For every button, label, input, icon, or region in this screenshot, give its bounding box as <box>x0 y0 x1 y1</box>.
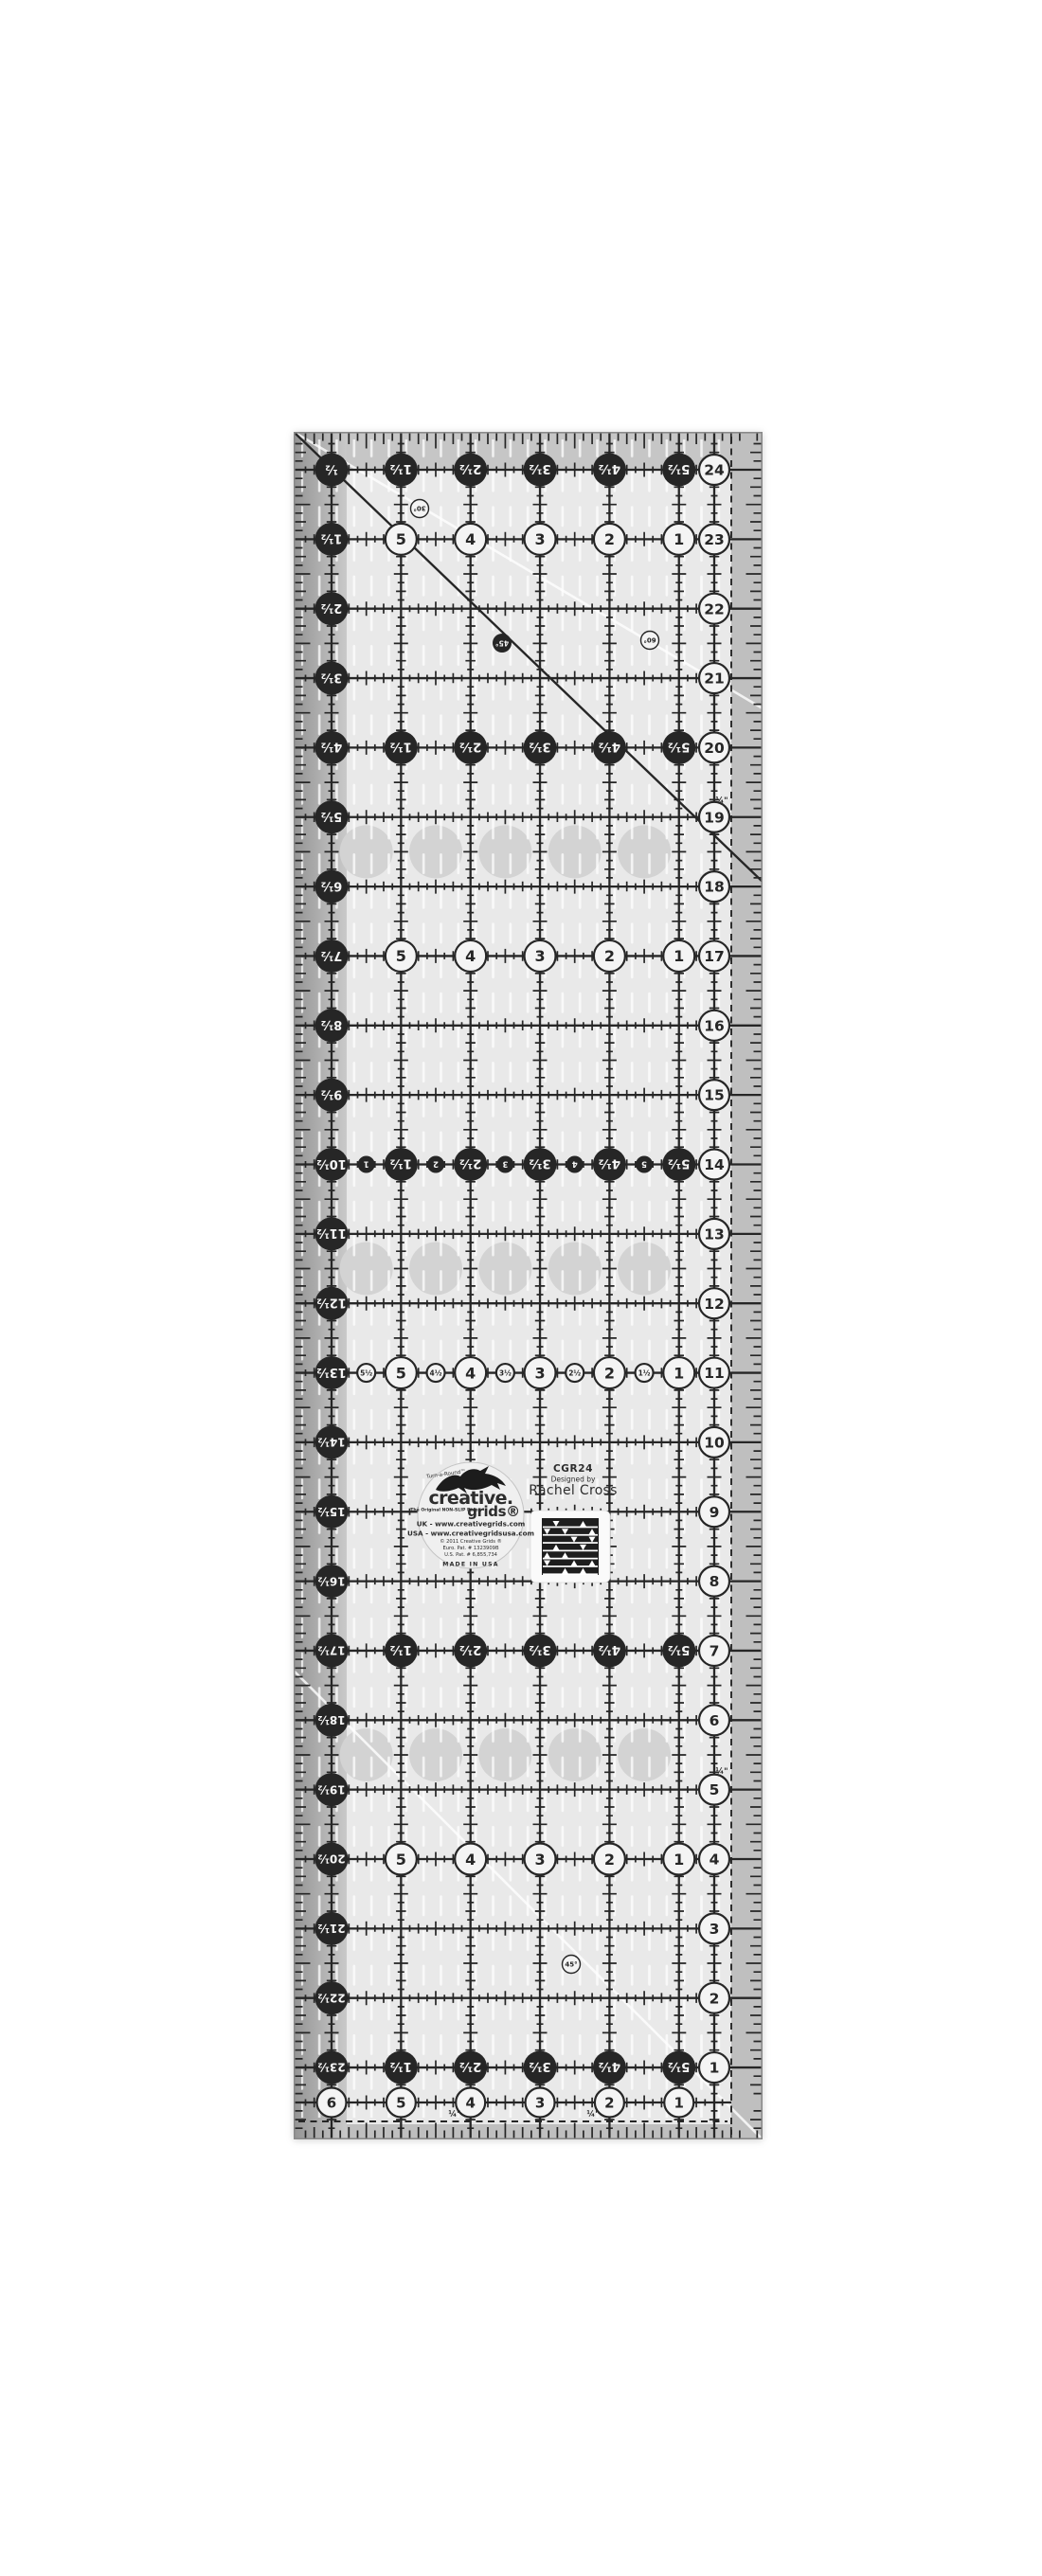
svg-text:11½: 11½ <box>316 1225 347 1240</box>
svg-text:24: 24 <box>704 462 725 479</box>
svg-text:19: 19 <box>704 809 725 826</box>
svg-text:6½: 6½ <box>321 878 343 892</box>
svg-text:20½: 20½ <box>317 1852 345 1866</box>
svg-text:17: 17 <box>704 948 725 965</box>
made-in-usa-label: MADE IN USA <box>442 1562 499 1568</box>
svg-text:14: 14 <box>704 1156 725 1173</box>
svg-text:4½: 4½ <box>599 1642 620 1657</box>
svg-text:4: 4 <box>465 2094 475 2111</box>
svg-text:3: 3 <box>710 1921 720 1938</box>
svg-text:14½: 14½ <box>317 1436 345 1449</box>
svg-text:3½: 3½ <box>321 670 343 684</box>
svg-text:1: 1 <box>710 2060 720 2077</box>
svg-text:7: 7 <box>710 1643 720 1660</box>
svg-text:3: 3 <box>534 1364 545 1382</box>
svg-text:22½: 22½ <box>317 1991 345 2004</box>
svg-text:2: 2 <box>604 1851 615 1869</box>
svg-text:5½: 5½ <box>321 809 343 823</box>
svg-text:4: 4 <box>465 1851 476 1869</box>
svg-text:9: 9 <box>710 1504 720 1521</box>
svg-text:3½: 3½ <box>529 461 550 476</box>
svg-text:1½: 1½ <box>638 1368 651 1377</box>
svg-text:5½: 5½ <box>668 461 690 476</box>
svg-text:2: 2 <box>710 1990 720 2007</box>
svg-text:1½: 1½ <box>390 1642 412 1657</box>
svg-text:2: 2 <box>604 1364 615 1382</box>
svg-text:1: 1 <box>674 1851 684 1869</box>
svg-text:3: 3 <box>534 947 545 965</box>
svg-text:6: 6 <box>327 2094 336 2111</box>
svg-text:5: 5 <box>396 530 406 548</box>
svg-text:2½: 2½ <box>459 1156 481 1172</box>
svg-text:4½: 4½ <box>599 1156 620 1172</box>
logo-tagline: The Original NON-SLIP Ruler <box>410 1509 479 1513</box>
svg-text:3: 3 <box>534 530 545 548</box>
svg-text:3½: 3½ <box>529 2059 550 2074</box>
svg-text:5: 5 <box>710 1781 720 1798</box>
svg-text:13: 13 <box>704 1225 725 1243</box>
svg-text:1: 1 <box>674 1364 684 1382</box>
svg-text:2½: 2½ <box>459 740 481 755</box>
svg-text:2: 2 <box>604 530 615 548</box>
copyright-line: © 2011 Creative Grids ® <box>440 1539 502 1545</box>
euro-patent-line: Euro. Pat. # 1323909B <box>442 1546 498 1551</box>
svg-text:3: 3 <box>534 1851 545 1869</box>
svg-text:1½: 1½ <box>390 1156 412 1172</box>
svg-text:18½: 18½ <box>317 1713 345 1726</box>
svg-text:21: 21 <box>704 671 725 688</box>
svg-text:5½: 5½ <box>360 1368 372 1377</box>
svg-text:60°: 60° <box>643 635 656 643</box>
svg-text:7½: 7½ <box>321 948 343 962</box>
svg-text:5: 5 <box>396 947 406 965</box>
svg-text:8: 8 <box>710 1573 720 1590</box>
svg-text:5: 5 <box>396 1364 406 1382</box>
svg-text:1½: 1½ <box>390 2059 412 2074</box>
svg-text:5½: 5½ <box>668 2059 690 2074</box>
svg-text:2½: 2½ <box>459 461 481 476</box>
svg-text:15: 15 <box>704 1087 725 1104</box>
svg-text:4: 4 <box>465 1364 476 1382</box>
svg-text:17½: 17½ <box>317 1644 345 1657</box>
svg-text:18: 18 <box>704 879 725 896</box>
svg-text:30°: 30° <box>413 504 425 511</box>
svg-text:5: 5 <box>396 2094 405 2111</box>
svg-text:5½: 5½ <box>668 740 690 755</box>
svg-text:16: 16 <box>704 1017 725 1034</box>
svg-text:4: 4 <box>572 1158 578 1168</box>
svg-text:12½: 12½ <box>316 1296 347 1310</box>
svg-text:1: 1 <box>674 530 684 548</box>
svg-text:1½: 1½ <box>321 531 343 546</box>
svg-text:15½: 15½ <box>317 1505 345 1518</box>
svg-text:4: 4 <box>465 530 476 548</box>
svg-text:16½: 16½ <box>317 1574 345 1587</box>
svg-text:3: 3 <box>535 2094 545 2111</box>
svg-text:2½: 2½ <box>321 600 343 615</box>
svg-text:21½: 21½ <box>317 1922 345 1935</box>
svg-text:4: 4 <box>465 947 476 965</box>
svg-text:20: 20 <box>704 740 725 757</box>
svg-text:19½: 19½ <box>317 1782 345 1796</box>
svg-text:12: 12 <box>704 1296 725 1313</box>
svg-text:1½: 1½ <box>390 740 412 755</box>
svg-text:4: 4 <box>710 1851 720 1869</box>
svg-text:23: 23 <box>704 531 725 548</box>
svg-text:2½: 2½ <box>459 1642 481 1657</box>
svg-text:2½: 2½ <box>568 1368 581 1377</box>
svg-text:10½: 10½ <box>316 1156 347 1171</box>
svg-text:4½: 4½ <box>430 1368 442 1377</box>
svg-text:3½: 3½ <box>499 1368 512 1377</box>
svg-text:3: 3 <box>502 1158 508 1168</box>
svg-text:3½: 3½ <box>529 1642 550 1657</box>
svg-text:4½: 4½ <box>321 740 343 754</box>
svg-text:2: 2 <box>604 2094 614 2111</box>
svg-text:2: 2 <box>433 1158 439 1168</box>
svg-text:45°: 45° <box>495 638 509 647</box>
svg-text:4½: 4½ <box>599 461 620 476</box>
usa-website: USA - www.creativegridsusa.com <box>407 1529 534 1538</box>
svg-text:10: 10 <box>704 1434 725 1451</box>
svg-text:22: 22 <box>704 600 725 617</box>
uk-website: UK - www.creativegrids.com <box>417 1520 526 1529</box>
svg-text:4½: 4½ <box>599 2059 620 2074</box>
designer-name: Rachel Cross <box>529 1483 618 1498</box>
svg-text:13½: 13½ <box>316 1365 347 1379</box>
svg-text:23½: 23½ <box>317 2061 345 2074</box>
svg-text:5: 5 <box>396 1851 406 1869</box>
svg-text:2: 2 <box>604 947 615 965</box>
quarter-inch-label: ¼" <box>448 2109 460 2120</box>
svg-text:6: 6 <box>710 1712 720 1729</box>
svg-text:8½: 8½ <box>321 1017 343 1031</box>
svg-text:3½: 3½ <box>529 740 550 755</box>
svg-text:5: 5 <box>641 1158 647 1168</box>
svg-text:9½: 9½ <box>321 1086 343 1100</box>
svg-text:1½: 1½ <box>390 461 412 476</box>
model-number: CGR24 <box>553 1463 593 1475</box>
svg-text:45°: 45° <box>565 1961 577 1969</box>
svg-text:5½: 5½ <box>668 1642 690 1657</box>
product-photo: ½241½2½3½4½5½1½23543212½223½214½201½2½3½… <box>0 0 1042 2576</box>
svg-text:4½: 4½ <box>599 740 620 755</box>
svg-text:3½: 3½ <box>529 1156 550 1172</box>
quilting-ruler: ½241½2½3½4½5½1½23543212½223½214½201½2½3½… <box>294 432 763 2139</box>
svg-text:11: 11 <box>704 1365 725 1382</box>
svg-text:1: 1 <box>674 2094 684 2111</box>
quarter-inch-label: ¼" <box>715 1766 728 1777</box>
quarter-inch-label: ¼" <box>715 796 728 806</box>
svg-text:1: 1 <box>674 947 684 965</box>
svg-text:½: ½ <box>325 461 337 475</box>
us-patent-line: U.S. Pat. # 6,855,734 <box>444 1552 497 1558</box>
quarter-inch-label: ¼" <box>586 2109 599 2120</box>
svg-text:2½: 2½ <box>459 2059 481 2074</box>
svg-text:1: 1 <box>364 1158 369 1168</box>
svg-text:5½: 5½ <box>668 1156 690 1172</box>
